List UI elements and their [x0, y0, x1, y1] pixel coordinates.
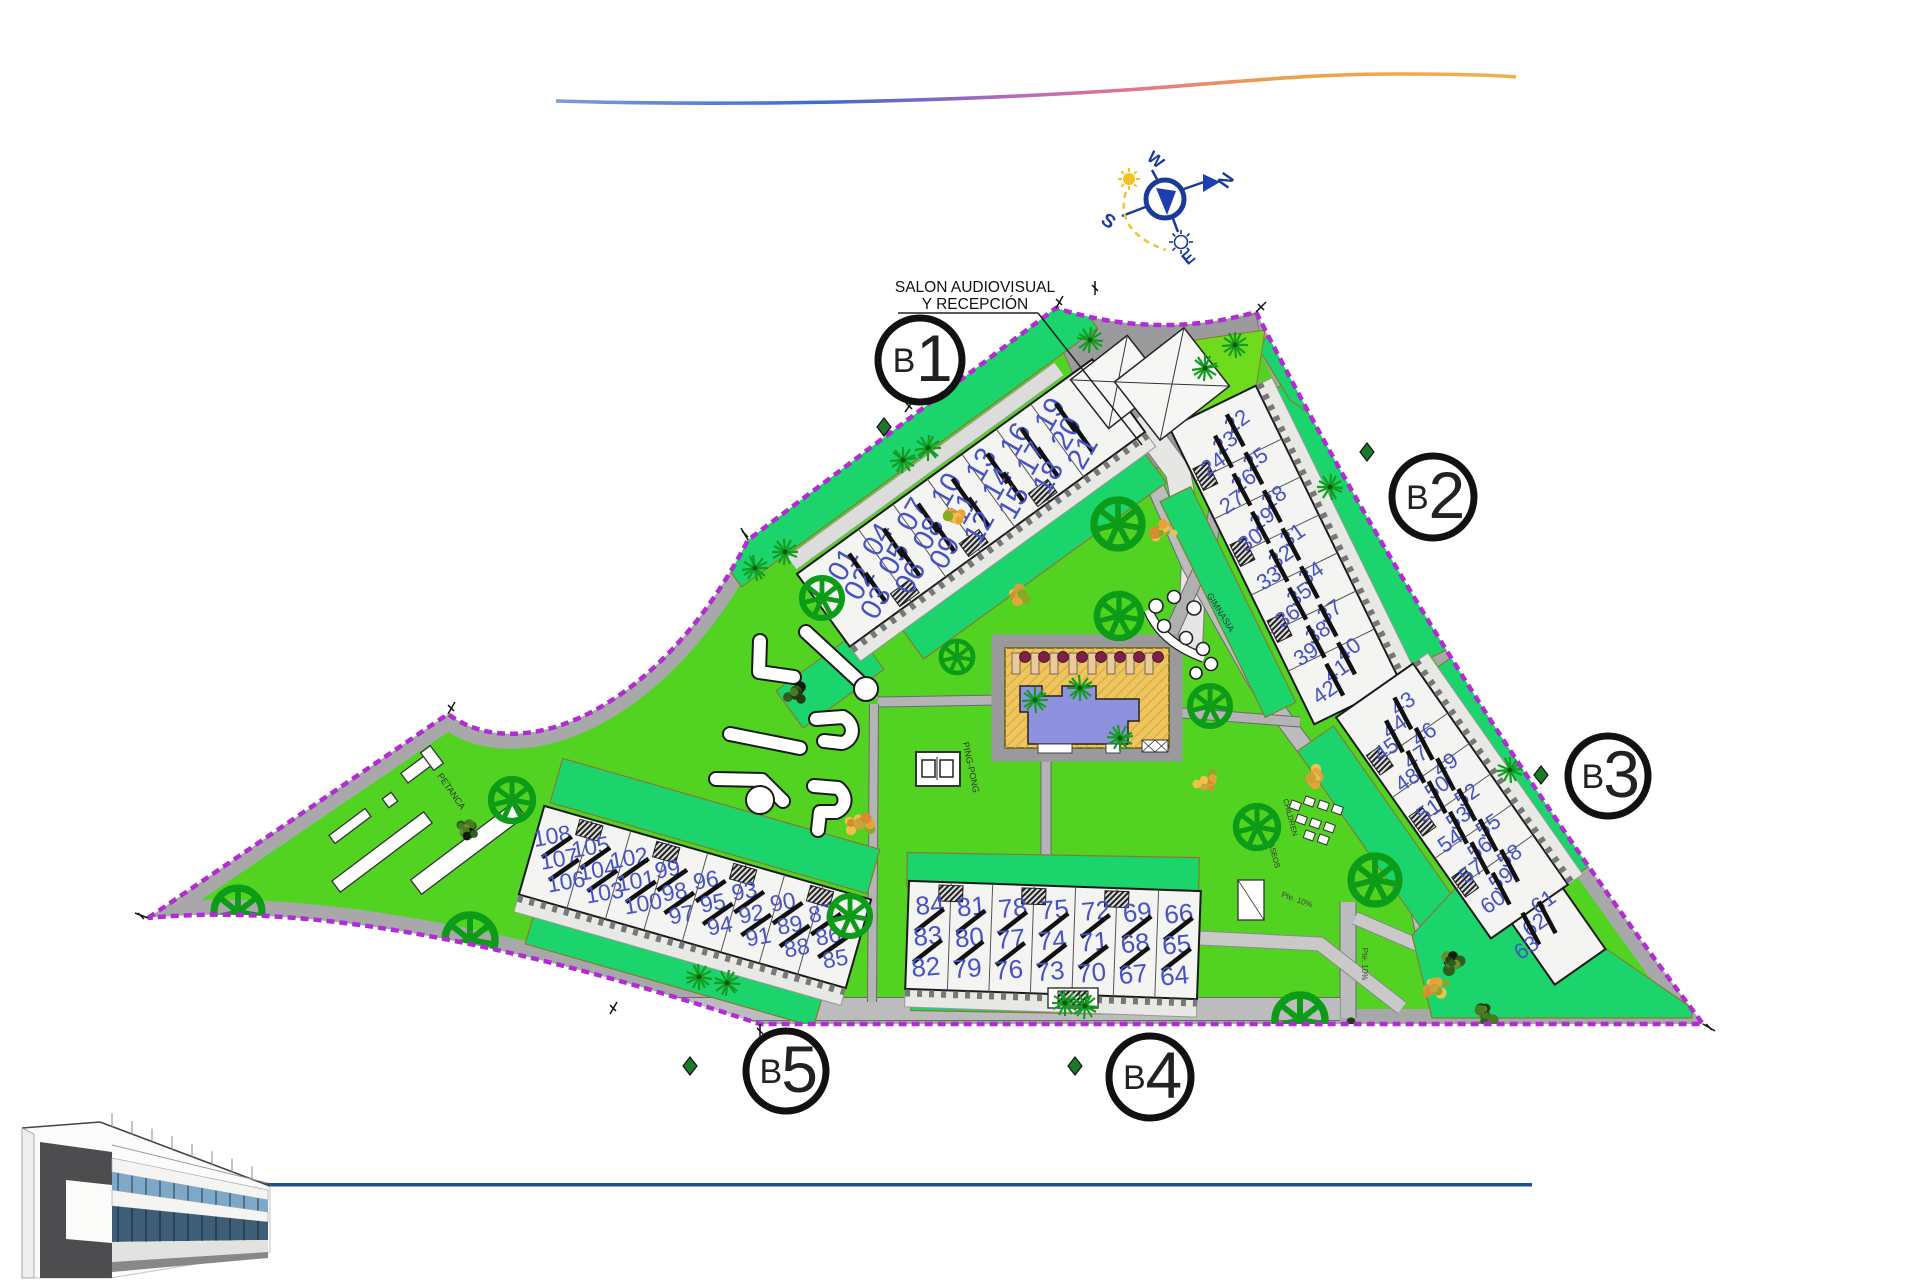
svg-text:64: 64 [1159, 959, 1190, 991]
svg-text:B: B [1406, 479, 1429, 517]
svg-text:88: 88 [782, 932, 812, 962]
svg-text:80: 80 [954, 921, 985, 953]
svg-text:SALON AUDIOVISUAL: SALON AUDIOVISUAL [895, 279, 1056, 296]
svg-text:74: 74 [1037, 924, 1068, 956]
svg-text:67: 67 [1117, 958, 1148, 990]
svg-text:82: 82 [910, 951, 941, 983]
svg-text:85: 85 [820, 943, 850, 973]
svg-text:71: 71 [1078, 925, 1109, 957]
svg-text:66: 66 [1163, 897, 1194, 929]
svg-text:73: 73 [1034, 955, 1065, 987]
svg-text:76: 76 [993, 953, 1024, 985]
svg-text:B: B [1123, 1059, 1146, 1097]
svg-text:70: 70 [1076, 956, 1107, 988]
svg-text:75: 75 [1039, 893, 1070, 925]
svg-text:1: 1 [916, 321, 953, 395]
svg-text:3: 3 [1603, 737, 1640, 811]
svg-text:78: 78 [997, 892, 1028, 924]
svg-text:94: 94 [705, 910, 735, 940]
svg-text:97: 97 [667, 899, 697, 929]
svg-text:69: 69 [1122, 896, 1153, 928]
svg-text:83: 83 [912, 920, 943, 952]
svg-text:84: 84 [914, 889, 945, 921]
svg-text:2: 2 [1429, 458, 1466, 532]
svg-text:B: B [893, 342, 916, 380]
svg-text:72: 72 [1080, 894, 1111, 926]
svg-text:65: 65 [1161, 928, 1192, 960]
svg-text:91: 91 [743, 921, 773, 951]
svg-text:Y RECEPCIÓN: Y RECEPCIÓN [922, 296, 1029, 313]
svg-text:B: B [1581, 758, 1604, 796]
svg-text:5: 5 [781, 1032, 818, 1106]
svg-text:68: 68 [1119, 927, 1150, 959]
svg-text:79: 79 [952, 952, 983, 984]
svg-text:Pte. 10%: Pte. 10% [1360, 948, 1369, 980]
svg-text:81: 81 [956, 890, 987, 922]
svg-text:77: 77 [995, 923, 1026, 955]
svg-text:4: 4 [1146, 1038, 1183, 1112]
svg-text:B: B [759, 1053, 782, 1091]
